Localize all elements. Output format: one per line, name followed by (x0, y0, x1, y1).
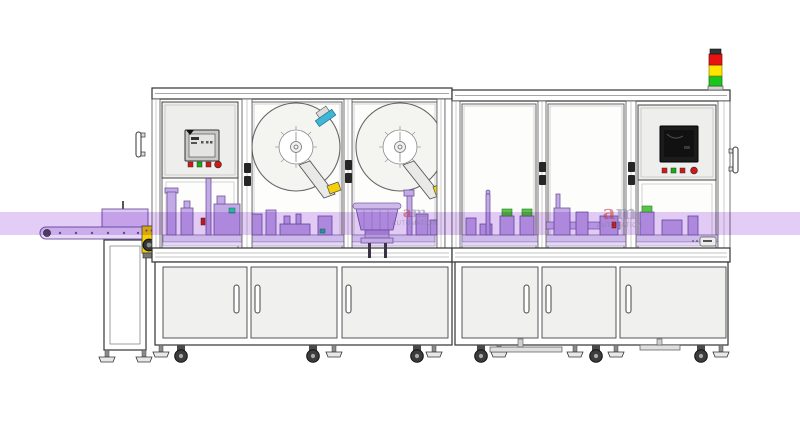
mid-rails (152, 248, 730, 262)
reset-button[interactable] (206, 162, 211, 167)
tower-light-red (709, 54, 722, 65)
label-reel-2 (356, 103, 444, 191)
cabinet-door[interactable] (342, 267, 448, 338)
door-handle[interactable] (234, 285, 239, 313)
caster-wheel (590, 345, 603, 362)
tower-light-yellow (709, 65, 722, 76)
caster-wheel (475, 345, 488, 362)
hmi-screen-left[interactable] (185, 130, 219, 161)
bowl-feeder-leg (368, 243, 371, 258)
emergency-stop-button[interactable] (691, 167, 698, 174)
stop-button[interactable] (662, 168, 667, 173)
caster-wheel (307, 345, 320, 362)
base-cabinet-right (455, 262, 728, 345)
stop-button[interactable] (188, 162, 193, 167)
product-flow-highlight-band (0, 212, 800, 235)
caster-wheel (411, 345, 424, 362)
start-button[interactable] (197, 162, 202, 167)
leveling-foot (326, 345, 342, 357)
caster-wheel (175, 345, 188, 362)
emergency-stop-button[interactable] (215, 161, 222, 168)
base-cabinet-left (155, 262, 452, 345)
leveling-foot (713, 345, 729, 357)
caster-wheel (695, 345, 708, 362)
machine-drawing (0, 0, 800, 438)
start-button[interactable] (671, 168, 676, 173)
door-handle[interactable] (626, 285, 631, 313)
tower-light-green (709, 76, 722, 86)
leveling-foot (153, 345, 169, 357)
signal-tower (708, 49, 723, 90)
cabinet-door[interactable] (251, 267, 337, 338)
tower-cap (710, 49, 721, 54)
left-door-handle (136, 132, 145, 157)
cabinet-door[interactable] (542, 267, 616, 338)
floor-rail (490, 347, 562, 352)
leveling-foot (426, 345, 442, 357)
control-panel-left (162, 102, 238, 178)
control-panel-right (638, 105, 716, 180)
leveling-foot (136, 350, 152, 362)
hmi-screen-right[interactable] (660, 126, 698, 162)
door-handle[interactable] (255, 285, 260, 313)
bowl-feeder-leg (384, 243, 387, 258)
floor-rail (640, 345, 680, 350)
door-handle[interactable] (524, 285, 529, 313)
leveling-foot (567, 345, 583, 357)
reset-button[interactable] (680, 168, 685, 173)
leveling-foot (99, 350, 115, 362)
leveling-foot (608, 345, 624, 357)
cabinet-door[interactable] (620, 267, 726, 338)
door-handle[interactable] (346, 285, 351, 313)
door-handle[interactable] (546, 285, 551, 313)
machine-illustration: am AUTOMATION am AUTOMATION (0, 0, 800, 438)
